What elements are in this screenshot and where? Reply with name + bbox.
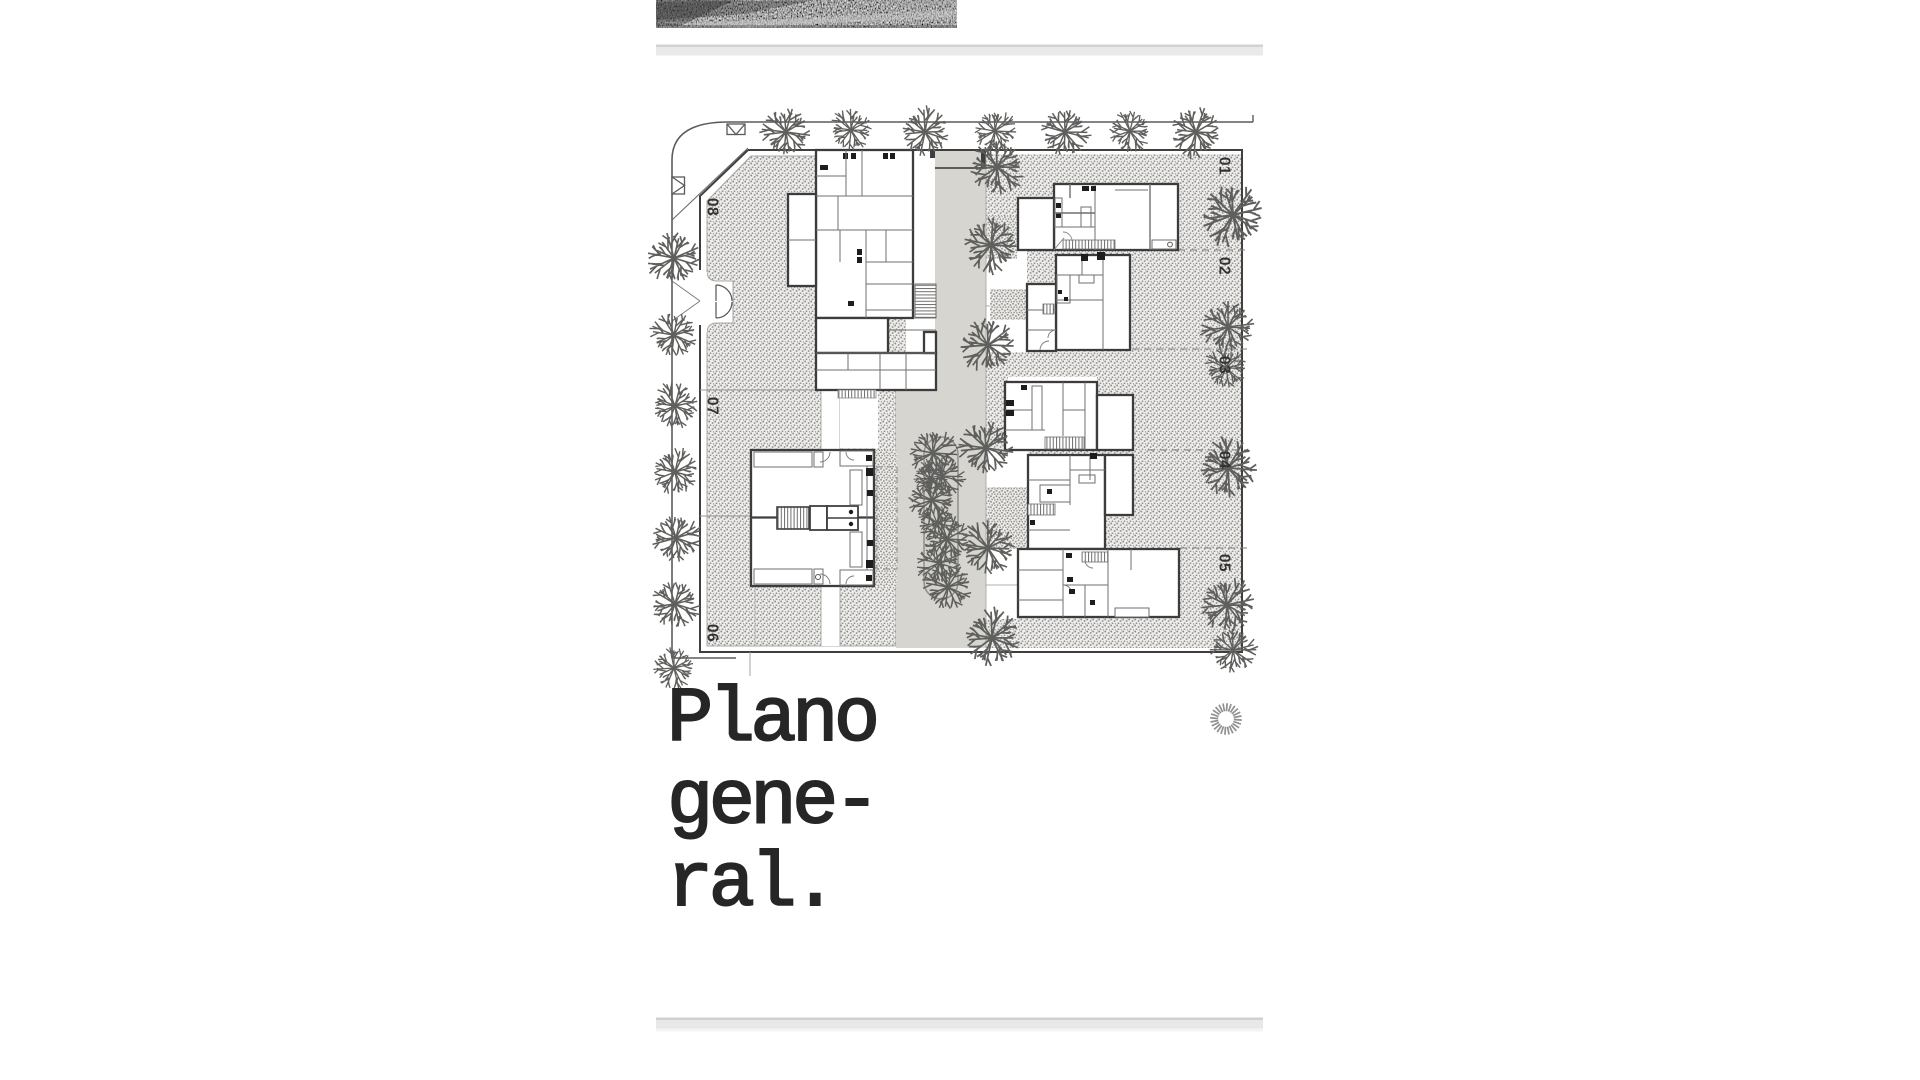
svg-text:gene-: gene- <box>667 760 876 847</box>
svg-text:07: 07 <box>704 397 721 415</box>
svg-text:03: 03 <box>1216 356 1233 374</box>
svg-text:Plano: Plano <box>667 677 876 764</box>
svg-text:ral.: ral. <box>667 842 834 929</box>
svg-text:04: 04 <box>1216 451 1233 469</box>
svg-text:05: 05 <box>1216 554 1233 572</box>
svg-text:02: 02 <box>1216 257 1233 275</box>
svg-text:01: 01 <box>1216 157 1233 175</box>
svg-text:08: 08 <box>704 198 721 216</box>
svg-text:06: 06 <box>704 624 721 642</box>
